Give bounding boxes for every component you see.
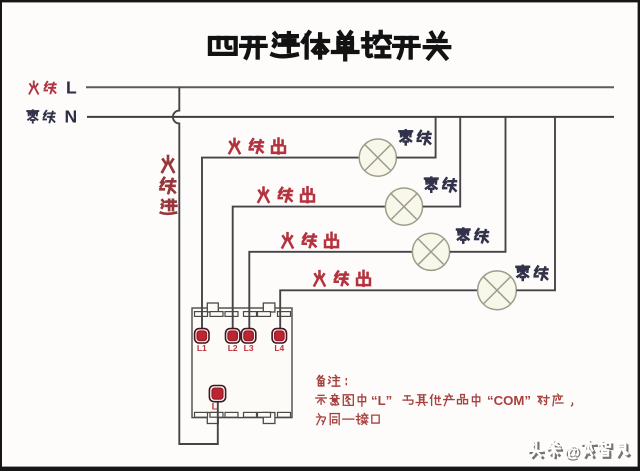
- svg-text:L1: L1: [197, 343, 207, 353]
- svg-text:L: L: [66, 78, 77, 98]
- svg-text:L4: L4: [274, 343, 284, 353]
- svg-text:L: L: [212, 402, 218, 413]
- svg-text:“COM”: “COM”: [487, 393, 531, 408]
- svg-text:“L”: “L”: [371, 393, 392, 408]
- svg-text:N: N: [65, 107, 78, 127]
- svg-text:@: @: [564, 443, 580, 460]
- svg-text:L2: L2: [228, 343, 238, 353]
- svg-text:L3: L3: [244, 343, 254, 353]
